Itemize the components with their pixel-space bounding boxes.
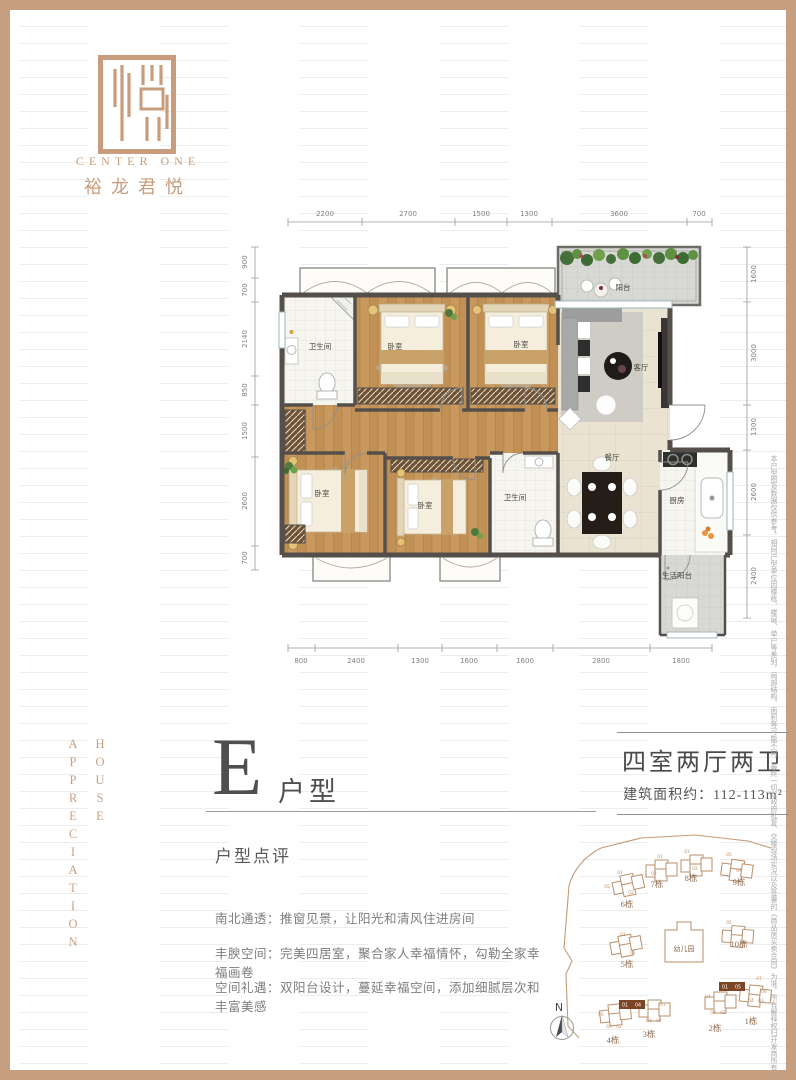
- dim-label: 700: [692, 210, 705, 218]
- unit-number: 07: [756, 976, 762, 982]
- dim-label: 850: [241, 383, 249, 396]
- unit-number: 02: [656, 1018, 662, 1024]
- building-label: 9栋: [733, 877, 746, 887]
- unit-number: 05: [726, 852, 732, 858]
- dim-label: 2400: [750, 567, 758, 585]
- site-plan: 01 04 01 05 01 02 05 01 02 03 02 05 03 0…: [543, 830, 785, 1078]
- north-label: N: [555, 1001, 563, 1014]
- title-divider: [206, 811, 596, 812]
- floor-plan: 阳台 卫生间 卧室 卧室 客厅 餐厅 厨房 生活阳台 卧室 卧室 卫生间 220…: [225, 200, 760, 700]
- dim-label: 800: [294, 657, 307, 665]
- building-label: 7栋: [651, 879, 664, 889]
- dim-label: 1800: [672, 657, 690, 665]
- review-item: 南北通透：推窗见景，让阳光和清风住进房间: [215, 908, 545, 927]
- building-label: 4栋: [607, 1035, 620, 1045]
- dim-label: 1600: [516, 657, 534, 665]
- north-compass-icon: N: [551, 1001, 574, 1040]
- dim-label: 3600: [610, 210, 628, 218]
- unit-layout: 四室两厅两卫: [617, 742, 789, 777]
- unit-number: 02: [630, 950, 636, 956]
- building-label: 8栋: [685, 873, 698, 883]
- dim-label: 2700: [399, 210, 417, 218]
- unit-number: 02: [692, 866, 698, 872]
- unit-number: 02: [720, 1010, 726, 1016]
- room-label-dining: 餐厅: [605, 453, 620, 462]
- unit-number: 05: [604, 884, 610, 890]
- room-label-bath1: 卫生间: [309, 341, 332, 351]
- unit-number: 01: [620, 932, 626, 938]
- highlight-unit-label: 01: [722, 985, 728, 991]
- kindergarten-outline: [665, 922, 703, 962]
- kindergarten-label: 幼儿园: [674, 944, 695, 953]
- dim-label: 700: [241, 283, 249, 296]
- dim-label: 1300: [750, 418, 758, 436]
- vertical-word-house: HOUSE: [92, 737, 107, 857]
- review-item: 空间礼遇：双阳台设计，蔓延幸福空间，添加细腻层次和丰富美感: [215, 977, 545, 1015]
- unit-number: 03: [710, 1010, 716, 1016]
- review-item: 丰腴空间：完美四居室，聚合家人幸福情怀，勾勒全家幸福画卷: [215, 943, 545, 981]
- room-label-bed2: 卧室: [514, 339, 529, 349]
- room-label-bath2: 卫生间: [504, 492, 527, 502]
- building-label: 6栋: [621, 899, 634, 909]
- building-label: 5栋: [621, 959, 634, 969]
- brand-name-en: CENTER ONE: [58, 154, 218, 169]
- room-label-service-balcony: 生活阳台: [662, 570, 692, 580]
- dim-label: 2200: [316, 210, 334, 218]
- dim-label: 1600: [460, 657, 478, 665]
- brochure-page: CENTER ONE 裕龙君悦 APPRECIATION HOUSE: [0, 0, 796, 1080]
- building-label: 2栋: [709, 1023, 722, 1033]
- dim-label: 700: [241, 551, 249, 564]
- vertical-word-appreciation: APPRECIATION: [65, 737, 80, 1037]
- building-label: 10栋: [730, 939, 748, 949]
- unit-number: 03: [736, 868, 742, 874]
- unit-type-suffix: 户型: [278, 770, 340, 809]
- dim-label: 2140: [241, 330, 249, 348]
- room-label-bed3: 卧室: [315, 488, 330, 498]
- unit-number: 03: [684, 849, 690, 855]
- unit-number: 05: [726, 920, 732, 926]
- building-label: 1栋: [745, 1016, 758, 1026]
- dim-label: 2600: [750, 483, 758, 501]
- unit-number: 04: [705, 994, 711, 1000]
- dim-label: 1500: [472, 210, 490, 218]
- disclaimer-text: 本户型图及数据仅供参考，相同户型单位因楼栋、楼层、单户等差别，局部结构、面积等可…: [767, 455, 780, 1080]
- highlight-unit-label: 01: [622, 1003, 628, 1009]
- dim-label: 1500: [241, 422, 249, 440]
- review-heading: 户型点评: [215, 842, 291, 867]
- unit-spec-box: 四室两厅两卫 建筑面积约：112-113m²: [617, 732, 789, 815]
- unit-number: 04: [748, 998, 754, 1004]
- dim-label: 2600: [241, 492, 249, 510]
- dim-label: 2400: [347, 657, 365, 665]
- unit-letter: E: [212, 726, 262, 808]
- unit-number: 02: [651, 871, 657, 877]
- brand-seal-icon: [98, 55, 176, 154]
- unit-number: 01: [660, 1002, 666, 1008]
- highlight-unit-label: 05: [735, 985, 741, 991]
- room-label-kitchen: 厨房: [670, 495, 685, 505]
- unit-area: 建筑面积约：112-113m²: [617, 784, 789, 804]
- unit-number: 03: [758, 998, 764, 1004]
- unit-number: 03: [606, 1024, 612, 1030]
- room-label-bed1: 卧室: [388, 341, 403, 351]
- highlight-unit-label: 04: [635, 1003, 641, 1009]
- unit-number: 03: [646, 1018, 652, 1024]
- room-label-balcony: 阳台: [616, 282, 631, 292]
- unit-number: 02: [616, 1024, 622, 1030]
- room-label-living: 客厅: [634, 362, 649, 372]
- unit-number: 05: [598, 1012, 604, 1018]
- unit-number: 01: [617, 870, 623, 876]
- dim-label: 900: [241, 255, 249, 268]
- dim-label: 2800: [592, 657, 610, 665]
- dim-label: 1300: [411, 657, 429, 665]
- unit-number: 01: [657, 854, 663, 860]
- dim-label: 3000: [750, 344, 758, 362]
- dim-label: 1600: [750, 265, 758, 283]
- dim-label: 1300: [520, 210, 538, 218]
- room-label-bed4: 卧室: [418, 500, 433, 510]
- building-label: 3栋: [643, 1029, 656, 1039]
- brand-name-cn: 裕龙君悦: [58, 173, 218, 199]
- unit-number: 02: [628, 890, 634, 896]
